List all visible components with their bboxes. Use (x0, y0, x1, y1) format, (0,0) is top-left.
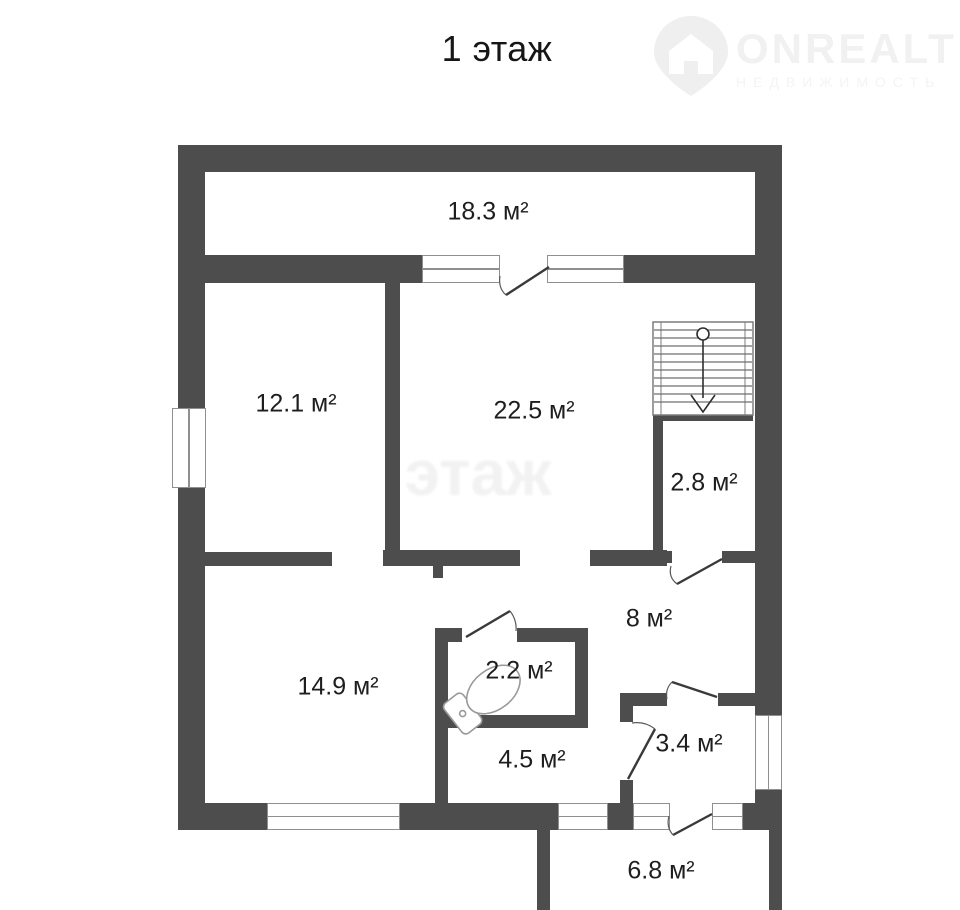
wall-porch-right (769, 830, 782, 910)
room-label-closet-28: 2.8 м² (670, 469, 737, 498)
room-label-room-45: 4.5 м² (498, 746, 565, 775)
room-label-room-22: 22.5 м² (493, 397, 574, 426)
wall-top (178, 145, 782, 172)
door-closet (670, 559, 722, 584)
wall-partition-12-22 (385, 283, 400, 553)
veranda-window-1 (422, 255, 500, 283)
right-window (755, 715, 782, 790)
stairs (653, 322, 753, 415)
wall-lobby-top-right (718, 693, 755, 706)
door-lobby (667, 682, 717, 699)
room-label-hall-8: 8 м² (626, 605, 672, 634)
wall-lobby-top-left (620, 693, 667, 706)
bottom-window-4 (712, 803, 743, 830)
logo-pin-icon (652, 14, 730, 98)
left-window (172, 408, 206, 488)
wall-porch-left (537, 830, 550, 910)
wall-divider-stub (620, 706, 633, 722)
onrealt-logo: ONREALT НЕДВИЖИМОСТЬ (652, 14, 957, 98)
wall-wc-right (575, 628, 588, 728)
logo-text: ONREALT НЕДВИЖИМОСТЬ (736, 28, 957, 90)
logo-brand: ONREALT (736, 28, 957, 70)
bottom-window-3 (633, 803, 670, 830)
wall-left-upper (178, 145, 205, 408)
room-label-lobby-34: 3.4 м² (655, 730, 722, 759)
logo-tagline: НЕДВИЖИМОСТЬ (736, 74, 957, 90)
stairs-treads (654, 330, 752, 402)
wall-bottom-c (608, 803, 633, 830)
door-veranda (500, 267, 549, 295)
bottom-window-1 (267, 803, 400, 830)
wall-wc-bottom (435, 715, 588, 728)
door-45-34 (628, 723, 655, 779)
wall-veranda-bottom-right (624, 255, 755, 283)
room-label-room-14: 14.9 м² (297, 673, 378, 702)
room-label-veranda: 18.3 м² (447, 198, 528, 227)
wall-veranda-bottom-left (205, 255, 422, 283)
wall-center-stub (433, 566, 443, 578)
wall-center-horizontal (383, 550, 520, 566)
wall-stairs-bottom (653, 413, 753, 421)
wall-bottom-b (400, 803, 558, 830)
wall-divider-bottom (620, 780, 633, 803)
wall-right-upper (755, 145, 782, 715)
wall-room14-top (205, 552, 332, 566)
wall-closet-bottom-right (722, 551, 755, 563)
watermark: этаж (405, 436, 552, 510)
wall-closet-left (653, 420, 663, 551)
wall-left-lower (178, 488, 205, 830)
room-label-room-12: 12.1 м² (255, 390, 336, 419)
stairs-start-circle (697, 328, 709, 340)
wall-bottom-d (743, 803, 782, 830)
door-entry (668, 814, 712, 835)
floor-plan-canvas: 1 этаж ONREALT НЕДВИЖИМОСТЬ (0, 0, 960, 910)
stairs-down-arrow (691, 395, 715, 412)
page-title: 1 этаж (442, 28, 553, 70)
room-label-wc-22: 2.2 м² (485, 657, 552, 686)
bottom-window-2 (558, 803, 608, 830)
wall-bottom-a (178, 803, 267, 830)
wall-closet-bottom-left (653, 551, 672, 563)
veranda-window-2 (547, 255, 624, 283)
wall-wc-top-left (435, 628, 462, 642)
door-wc (466, 611, 516, 637)
room-label-porch-68: 6.8 м² (627, 857, 694, 886)
